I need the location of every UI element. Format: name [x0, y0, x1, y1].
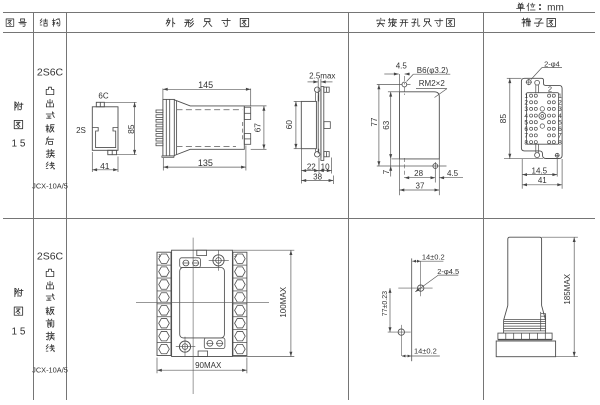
svg-text:28: 28: [414, 169, 423, 178]
svg-text:2: 2: [548, 85, 552, 94]
svg-text:14±0.2: 14±0.2: [422, 252, 445, 261]
svg-text:77±0.23: 77±0.23: [382, 291, 389, 316]
svg-text:1 5: 1 5: [12, 327, 26, 338]
svg-text:37: 37: [416, 181, 425, 190]
svg-text:B6(φ3.2): B6(φ3.2): [417, 66, 449, 75]
svg-text:38: 38: [313, 173, 322, 182]
svg-text:2.5max: 2.5max: [309, 72, 335, 81]
svg-text:8: 8: [558, 139, 562, 146]
svg-text:4.5: 4.5: [447, 169, 459, 178]
svg-text:4.5: 4.5: [396, 62, 408, 71]
svg-text:10: 10: [321, 162, 330, 171]
svg-text:14±0.2: 14±0.2: [414, 347, 437, 356]
svg-text:2S: 2S: [76, 126, 86, 135]
svg-text:2S6C: 2S6C: [37, 251, 64, 263]
svg-text:14.5: 14.5: [532, 167, 548, 176]
svg-text:85: 85: [126, 124, 136, 134]
svg-text:77: 77: [370, 117, 379, 126]
svg-text:145: 145: [198, 80, 213, 90]
svg-text:JCX-10A/5: JCX-10A/5: [32, 182, 68, 191]
svg-text:185MAX: 185MAX: [563, 273, 572, 304]
svg-text:RM2×2: RM2×2: [419, 79, 446, 88]
svg-text:67: 67: [252, 123, 262, 133]
svg-text:JCX-10A/5: JCX-10A/5: [32, 366, 68, 375]
svg-text:60: 60: [284, 120, 294, 130]
svg-text:41: 41: [100, 161, 110, 171]
svg-text:135: 135: [198, 158, 213, 168]
svg-text:22: 22: [307, 162, 316, 171]
svg-text:100MAX: 100MAX: [279, 286, 288, 317]
svg-text:mm: mm: [547, 3, 564, 14]
svg-text:41: 41: [538, 176, 547, 185]
svg-text:7: 7: [382, 169, 391, 174]
svg-text:2S6C: 2S6C: [37, 67, 64, 79]
svg-text:6C: 6C: [98, 91, 108, 100]
svg-text:90MAX: 90MAX: [195, 361, 222, 370]
svg-text:85: 85: [498, 114, 508, 124]
svg-text:63: 63: [382, 120, 391, 129]
svg-text:1 5: 1 5: [12, 139, 26, 150]
svg-text:8: 8: [524, 139, 528, 146]
